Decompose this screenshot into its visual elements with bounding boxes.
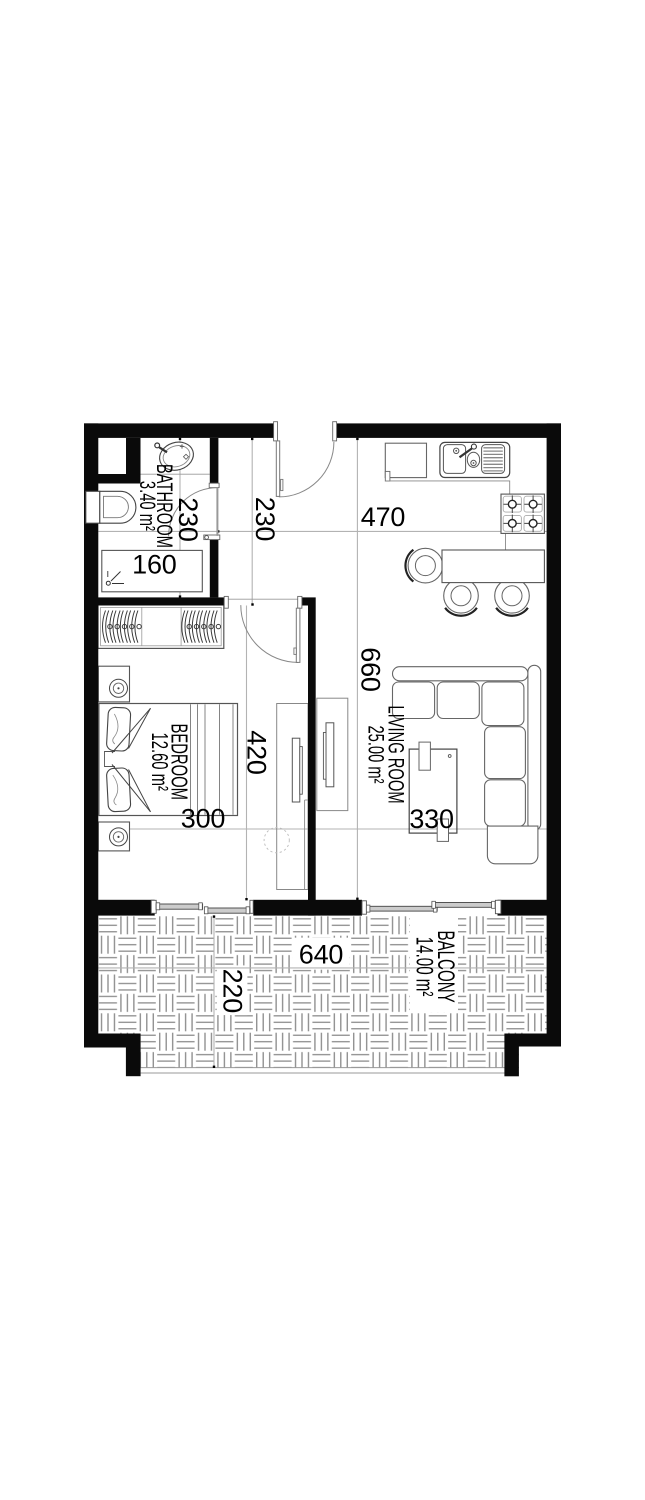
svg-text:3.40 m²: 3.40 m²: [136, 481, 161, 531]
svg-text:420: 420: [241, 730, 271, 774]
svg-text:470: 470: [361, 502, 405, 532]
svg-text:300: 300: [181, 803, 225, 833]
svg-text:220: 220: [218, 969, 248, 1013]
svg-text:14.00 m²: 14.00 m²: [411, 937, 437, 997]
svg-text:25.00 m²: 25.00 m²: [363, 725, 388, 783]
svg-text:640: 640: [299, 940, 343, 970]
svg-text:330: 330: [409, 804, 453, 834]
svg-text:660: 660: [355, 647, 385, 691]
svg-text:230: 230: [250, 497, 280, 541]
svg-text:12.60 m²: 12.60 m²: [146, 733, 172, 792]
svg-text:160: 160: [132, 550, 176, 580]
